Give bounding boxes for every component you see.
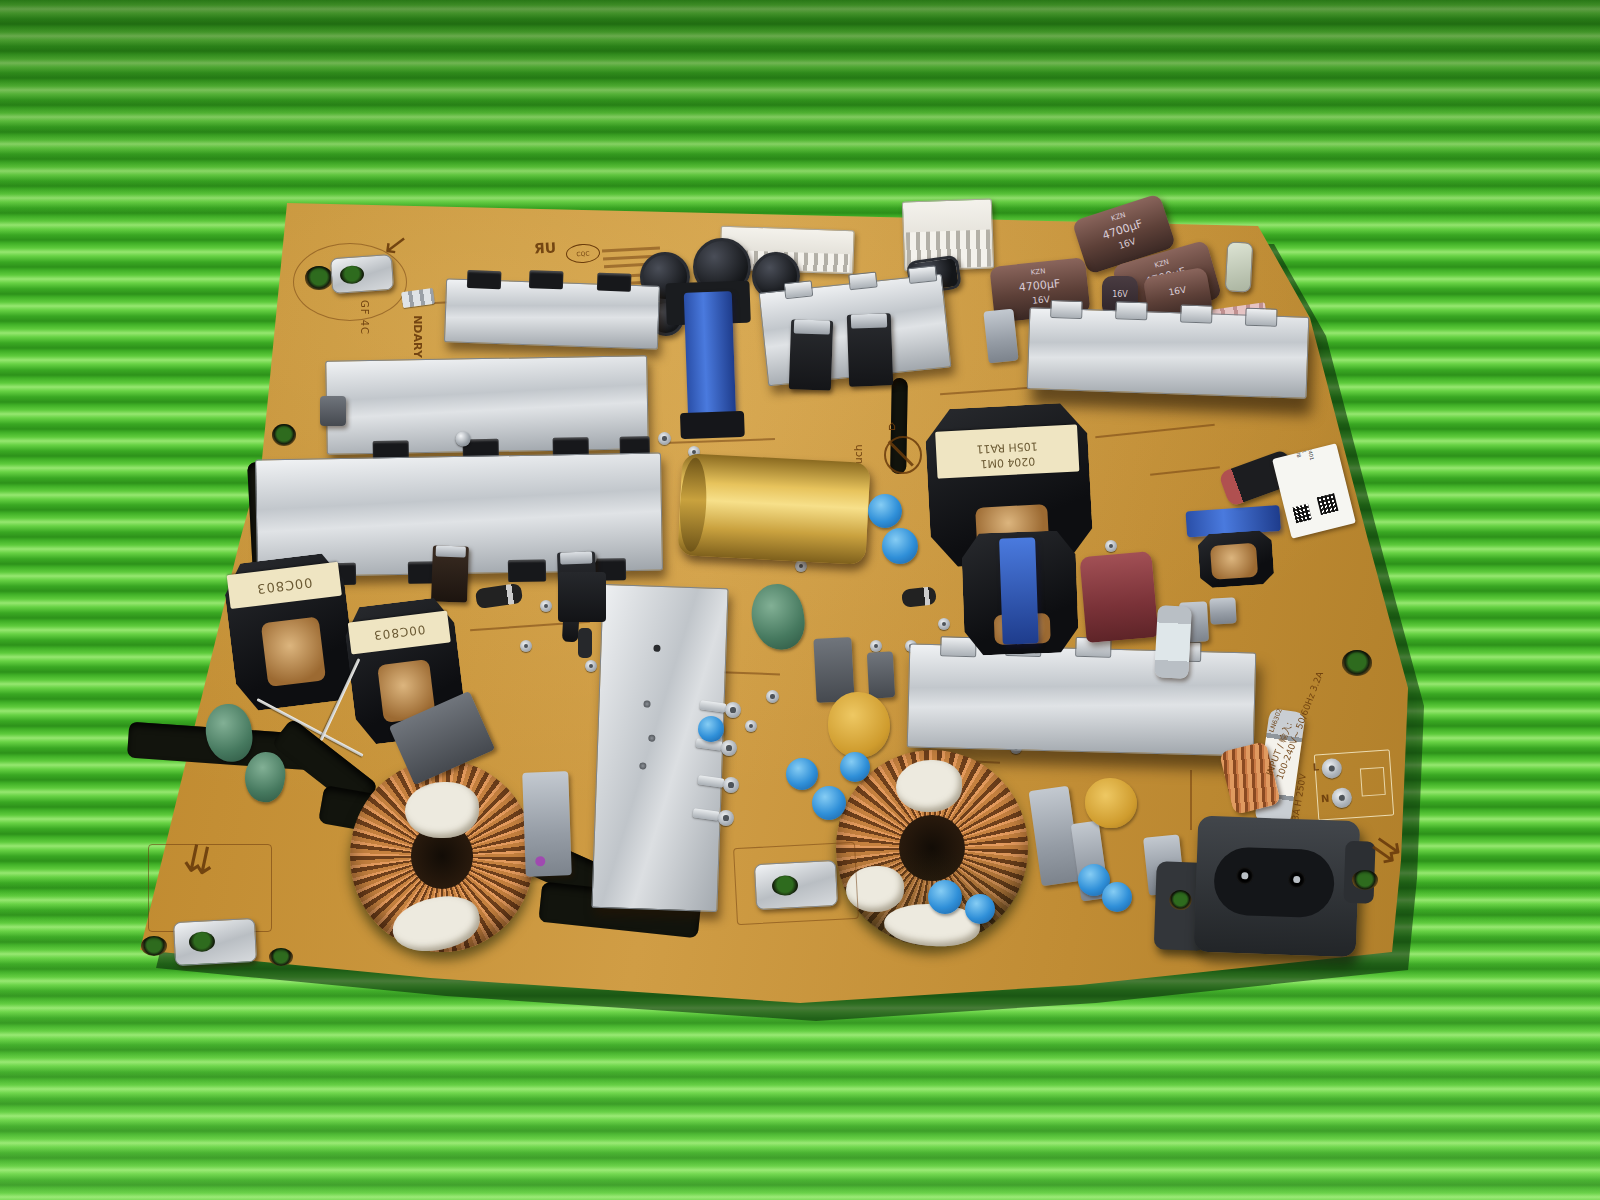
live-pad	[1321, 758, 1342, 779]
disc-cap-blue	[928, 880, 962, 914]
clip	[784, 280, 814, 299]
silk-neutral: N	[1321, 793, 1330, 805]
disc-cap-blue	[868, 494, 902, 528]
to220-transistor	[431, 545, 469, 602]
film-cap-maroon	[1079, 551, 1158, 643]
solder-pad	[870, 640, 882, 652]
mounting-hole-bottom-right	[1352, 870, 1378, 890]
glass-fuse-small	[1154, 605, 1192, 679]
heatsink-top-right	[1027, 307, 1310, 399]
to220-transistor	[789, 319, 833, 390]
mounting-hole-top-left	[305, 266, 333, 290]
film-cap-gray	[522, 771, 572, 877]
heatsink-bar-1	[444, 278, 660, 349]
tab-hole	[188, 931, 215, 952]
corner-arrow-icon: ↙	[381, 224, 411, 262]
solder-pad	[723, 777, 739, 793]
qr-code-icon	[1292, 504, 1311, 523]
qr-code-icon	[1317, 493, 1339, 515]
transformer-blue-clamp-right	[1183, 498, 1293, 593]
clip	[1245, 308, 1278, 327]
clip	[1050, 300, 1083, 319]
disc-cap-blue	[965, 894, 995, 924]
solder-pad	[1105, 540, 1117, 552]
transformer-00c803-1: 00C803	[221, 551, 358, 713]
ground-tab-bottom-center	[754, 860, 838, 910]
transformer-blue-clamp-center	[961, 530, 1079, 656]
heatsink-mid-right	[907, 643, 1257, 756]
solder-pad	[795, 560, 807, 572]
tab-hole	[772, 875, 799, 896]
disc-cap-blue	[882, 528, 918, 564]
small-transistor	[558, 572, 606, 622]
gold-capacitor	[677, 453, 870, 565]
to220-transistor	[847, 313, 893, 386]
disc-cap-blue	[786, 758, 818, 790]
clip	[908, 265, 938, 284]
resistor-box	[1209, 597, 1236, 624]
solder-pad	[721, 740, 737, 756]
silk-rect	[1360, 767, 1386, 797]
ac-inlet-socket	[1153, 806, 1376, 966]
solder-pad	[520, 640, 532, 652]
disc-cap-blue	[698, 716, 724, 742]
clip	[1115, 301, 1148, 320]
disc-cap-yellow	[828, 692, 890, 758]
solder-pad	[766, 690, 779, 703]
transistor-clip	[508, 559, 546, 582]
ground-tab-bottom-left	[173, 918, 257, 966]
transistor-clip	[467, 270, 502, 289]
disc-cap-blue	[1102, 882, 1132, 912]
ul-mark-icon: ЯU	[534, 239, 557, 256]
ground-tab-top-left	[330, 254, 394, 294]
disc-cap-yellow	[1085, 778, 1137, 828]
house-icon: ⌂	[888, 418, 896, 433]
heatsink-bar-2	[325, 355, 649, 455]
photo-scene: ↙ GF 4C NDARY ЯU CQC ⌂ Don't Touch	[0, 0, 1600, 1200]
mounting-hole-right	[1342, 650, 1372, 676]
solder-pad	[718, 810, 734, 826]
solder-pad	[585, 660, 597, 672]
tab-hole	[339, 265, 364, 285]
plated-hole-left	[272, 424, 296, 446]
silk-gf-mark: GF 4C	[359, 300, 370, 335]
clip	[1180, 304, 1213, 323]
small-component	[320, 396, 346, 426]
silk-secondary-label: NDARY	[411, 315, 424, 358]
silk-live: L	[1312, 761, 1319, 772]
glue-blob	[896, 760, 962, 812]
solder-pad	[745, 720, 757, 732]
clip	[848, 271, 878, 290]
ac-terminal-silk-box: L N	[1314, 749, 1394, 820]
glue-blob	[405, 782, 479, 838]
transistor-clip	[529, 270, 564, 289]
solder-pad	[658, 432, 671, 445]
solder-pad	[540, 600, 552, 612]
neutral-pad	[1331, 787, 1352, 808]
solder-pad	[725, 702, 741, 718]
mounting-hole-bottom-left-2	[269, 948, 293, 966]
inlet-mounting-hole	[1169, 890, 1192, 911]
mounting-hole-bottom-left-1	[141, 936, 167, 956]
edge-tab-right	[1225, 241, 1254, 292]
transformer-main-label: 0204 0M1 105H RA11	[935, 424, 1079, 478]
transistor-clip	[597, 273, 632, 292]
disc-cap-blue	[840, 752, 870, 782]
electrolytic-cap-silver	[983, 309, 1018, 364]
resistor-box	[867, 651, 895, 698]
no-touch-icon	[884, 436, 922, 474]
disc-cap-blue	[812, 786, 846, 820]
diode-standing	[578, 628, 592, 658]
solder-pad	[938, 618, 950, 630]
choke-blue-clamp-top	[665, 281, 754, 434]
